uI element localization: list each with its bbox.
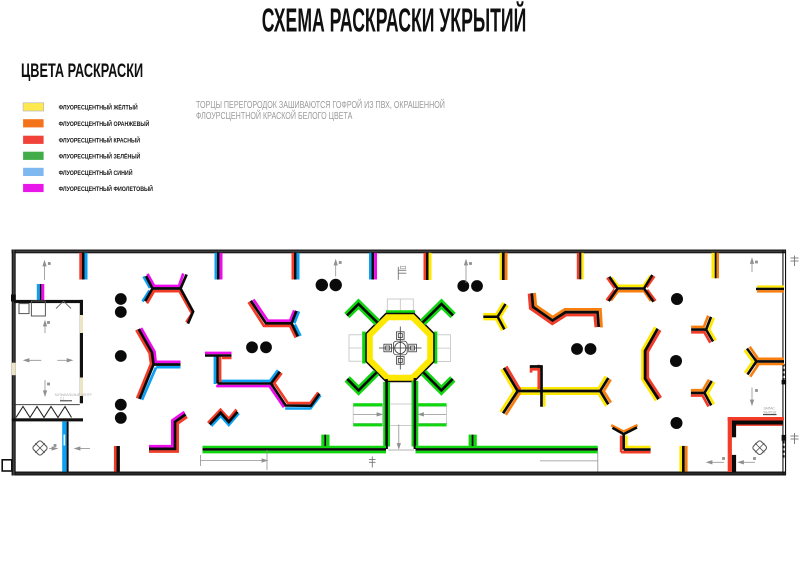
svg-text:СХЕМА РАСКРАСКИ УКРЫТИЙ: СХЕМА РАСКРАСКИ УКРЫТИЙ xyxy=(262,2,527,39)
svg-text:ЦВЕТА РАСКРАСКИ: ЦВЕТА РАСКРАСКИ xyxy=(21,60,143,81)
svg-text:ТОРЦЫ ПЕРЕГОРОДОК ЗАШИВАЮТСЯ Г: ТОРЦЫ ПЕРЕГОРОДОК ЗАШИВАЮТСЯ ГОФРОЙ ИЗ П… xyxy=(196,98,445,111)
svg-text:ФЛОУРСЦЕНТНОЙ КРАСКОЙ БЕЛОГО Ц: ФЛОУРСЦЕНТНОЙ КРАСКОЙ БЕЛОГО ЦВЕТА xyxy=(196,109,353,122)
svg-text:ФЛУОРЕСЦЕНТНЫЙ ЗЕЛЁНЫЙ: ФЛУОРЕСЦЕНТНЫЙ ЗЕЛЁНЫЙ xyxy=(59,152,141,161)
svg-text:2.1: 2.1 xyxy=(60,397,65,401)
svg-text:ВЫХОД: ВЫХОД xyxy=(764,410,777,414)
svg-text:ФЛУОРЕСЦЕНТНЫЙ СИНИЙ: ФЛУОРЕСЦЕНТНЫЙ СИНИЙ xyxy=(59,168,133,177)
svg-text:ФЛУОРЕСЦЕНТНЫЙ ЖЁЛТЫЙ: ФЛУОРЕСЦЕНТНЫЙ ЖЁЛТЫЙ xyxy=(59,103,138,112)
svg-text:ФЛУОРЕСЦЕНТНЫЙ КРАСНЫЙ: ФЛУОРЕСЦЕНТНЫЙ КРАСНЫЙ xyxy=(59,136,140,145)
svg-text:ФЛУОРЕСЦЕНТНЫЙ ОРАНЖЕВЫЙ: ФЛУОРЕСЦЕНТНЫЙ ОРАНЖЕВЫЙ xyxy=(59,119,150,128)
svg-text:ФЛУОРЕСЦЕНТНЫЙ ФИОЛЕТОВЫЙ: ФЛУОРЕСЦЕНТНЫЙ ФИОЛЕТОВЫЙ xyxy=(59,184,153,193)
